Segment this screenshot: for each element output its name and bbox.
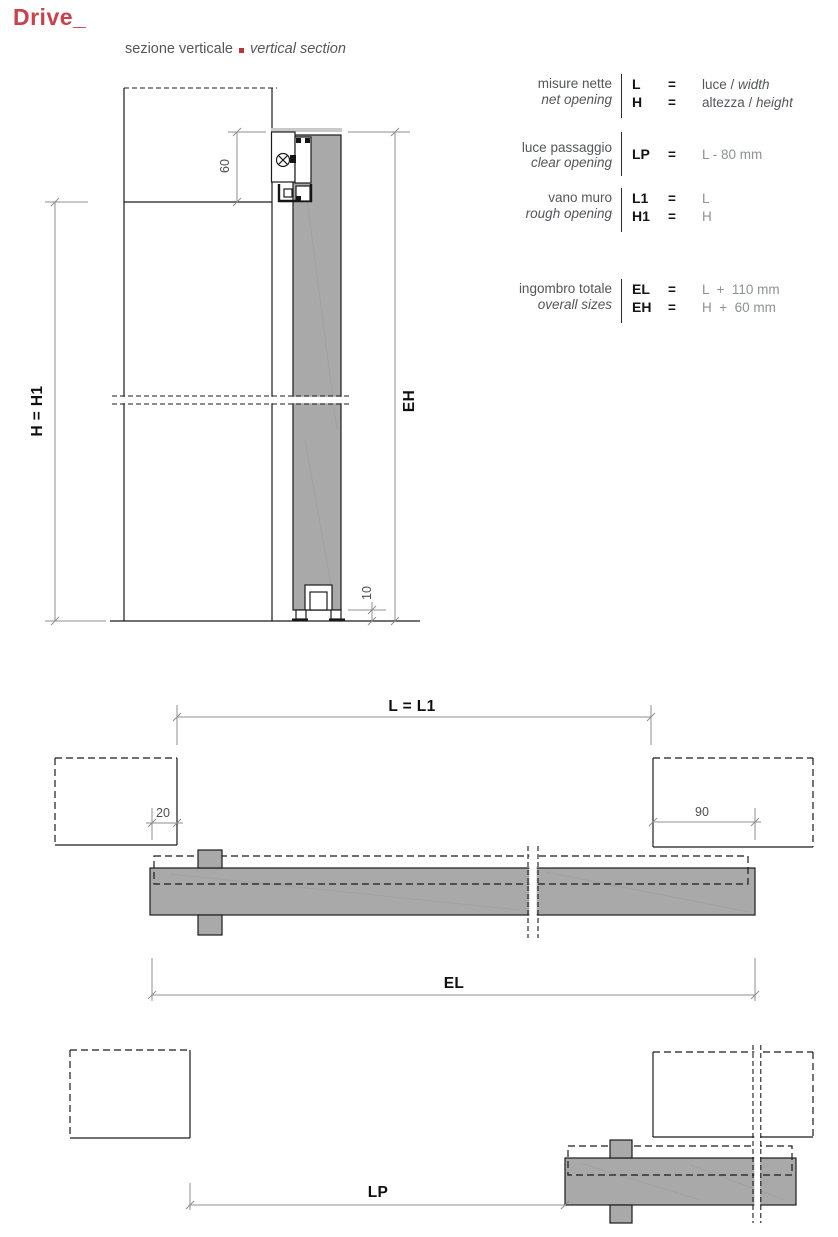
roller-clip-top [198,850,222,868]
technical-drawings: 60 10 H = H1 [0,0,838,1237]
door-panel-section [293,135,341,610]
dim-label-60: 60 [218,159,232,173]
dim-label-eh: EH [401,390,418,412]
dimension-l-l1: L = L1 [173,698,655,745]
left-wall-plan [55,758,177,845]
roller-clip-bottom [198,915,222,935]
dimension-90: 90 [649,805,761,840]
dimension-lp: LP [186,1183,569,1210]
dimension-60: 60 [218,128,266,206]
door-panel-plan [150,868,755,915]
dimension-10: 10 [348,586,386,625]
vertical-section-drawing: 60 10 H = H1 [29,88,420,625]
right-wall-plan [653,758,813,847]
dim-label-90: 90 [695,805,709,819]
dimension-height: H = H1 [29,198,106,625]
break-line [112,396,352,404]
dim-label-10: 10 [360,586,374,600]
dimension-el: EL [148,958,759,1001]
horizontal-section-open-drawing: LP [70,1045,813,1223]
left-wall-plan [70,1050,190,1138]
dim-label-h-h1: H = H1 [29,385,46,436]
right-wall-plan [653,1052,813,1137]
dim-label-el: EL [444,975,465,992]
dimension-overall-height: EH [348,128,418,625]
break-line [528,846,538,938]
roller-clip-top [610,1140,632,1158]
dim-label-20: 20 [156,806,170,820]
dim-label-lp: LP [368,1184,389,1201]
roller-clip-bottom [610,1205,632,1223]
dim-label-l-l1: L = L1 [388,698,435,715]
drive-spec-sheet: Drive_ sezione verticale vertical sectio… [0,0,838,1237]
roller-carriage [295,137,311,183]
horizontal-section-closed-drawing: L = L1 20 [55,698,813,1001]
